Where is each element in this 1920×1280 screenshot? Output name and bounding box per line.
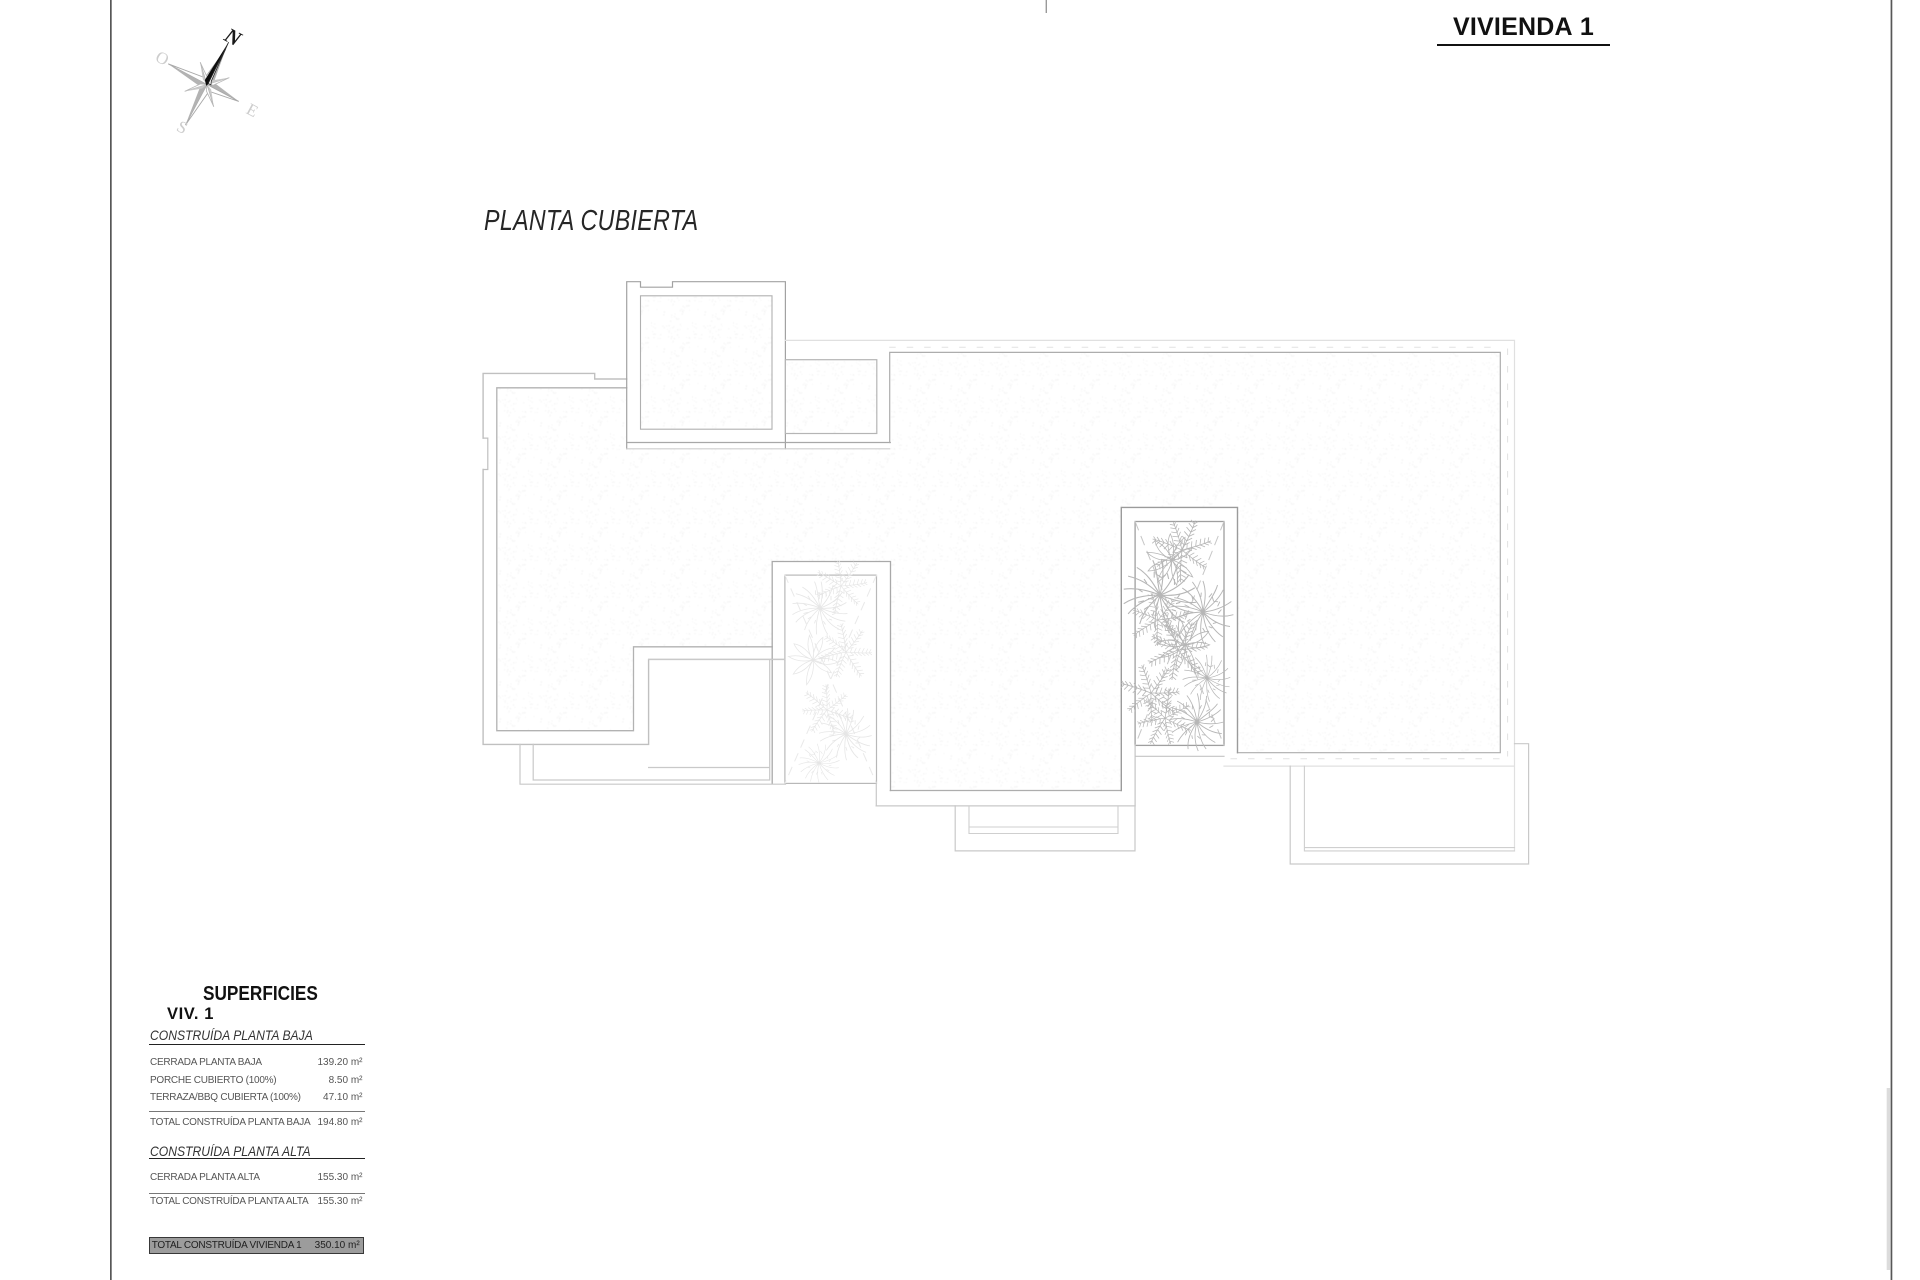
- svg-text:O: O: [152, 47, 172, 70]
- svg-text:N: N: [220, 22, 246, 51]
- svg-text:E: E: [243, 99, 261, 121]
- svg-text:S: S: [174, 117, 191, 138]
